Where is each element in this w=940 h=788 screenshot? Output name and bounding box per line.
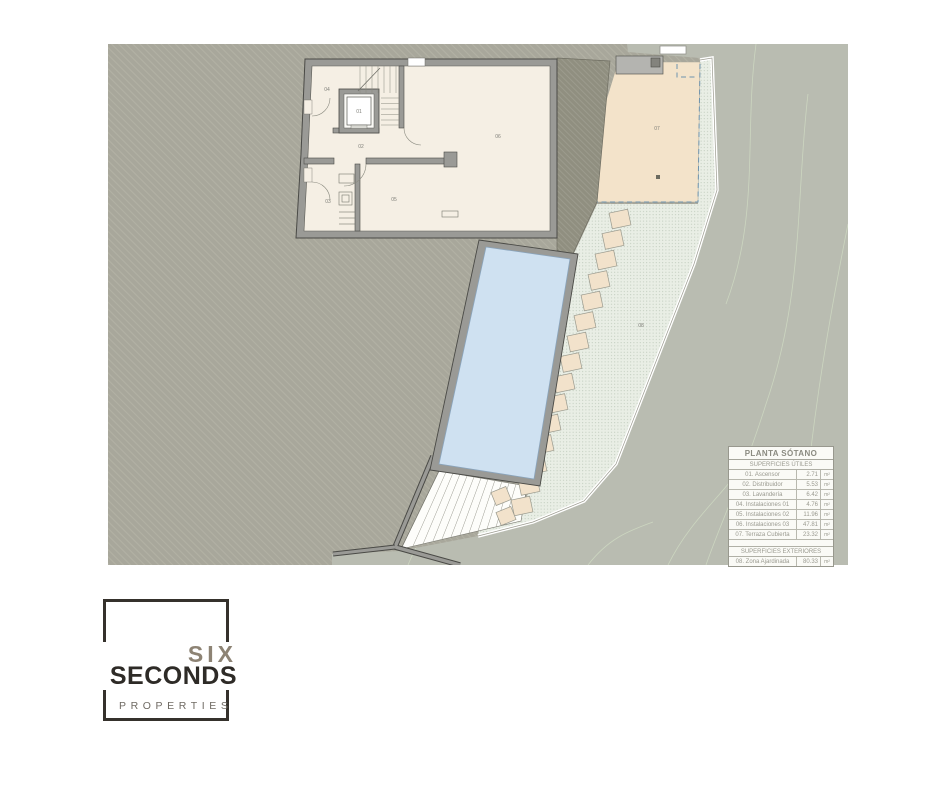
room-label-02: 02 (358, 144, 364, 150)
legend-row: 04. Instalaciones 01 4.76 m² (729, 500, 833, 510)
legend-row-label: 05. Instalaciones 02 (729, 510, 796, 519)
legend-row-unit: m² (820, 500, 833, 509)
legend-row-label: 08. Zona Ajardinada (729, 557, 796, 566)
legend-row-value: 6.42 (796, 490, 820, 499)
legend-row: 06. Instalaciones 03 47.81 m² (729, 520, 833, 530)
room-label-03: 03 (325, 199, 331, 205)
legend-section-header-utiles: SUPERFICIES ÚTILES (729, 460, 833, 470)
legend-row: 05. Instalaciones 02 11.96 m² (729, 510, 833, 520)
room-label-06: 06 (495, 134, 501, 140)
legend-row: 01. Ascensor 2.71 m² (729, 470, 833, 480)
room-label-04: 04 (324, 87, 330, 93)
legend-row-value: 2.71 (796, 470, 820, 479)
legend-row-unit: m² (820, 510, 833, 519)
legend-section-header-exteriores: SUPERFICIES EXTERIORES (729, 547, 833, 557)
legend-row-label: 01. Ascensor (729, 470, 796, 479)
house (296, 58, 557, 238)
room-label-08: 08 (638, 323, 644, 329)
legend-row-label: 02. Distribuidor (729, 480, 796, 489)
legend-row-label: 06. Instalaciones 03 (729, 520, 796, 529)
legend-row-unit: m² (820, 557, 833, 566)
page: 04 01 02 03 05 06 07 08 PLANTA SÓTANO SU… (0, 0, 940, 788)
legend-row-label: 03. Lavandería (729, 490, 796, 499)
legend-row: 08. Zona Ajardinada 80.33 m² (729, 557, 833, 566)
legend-row-label: 07. Terraza Cubierta (729, 530, 796, 539)
legend-row-unit: m² (820, 470, 833, 479)
legend-row: 07. Terraza Cubierta 23.32 m² (729, 530, 833, 540)
logo-wordmark: SIX SECONDS (100, 642, 237, 690)
legend-table: PLANTA SÓTANO SUPERFICIES ÚTILES 01. Asc… (728, 446, 834, 567)
legend-row-value: 11.96 (796, 510, 820, 519)
top-wall-vent (408, 58, 425, 66)
legend-row: 03. Lavandería 6.42 m² (729, 490, 833, 500)
legend-row-unit: m² (820, 480, 833, 489)
legend-row-unit: m² (820, 530, 833, 539)
legend-row-value: 47.81 (796, 520, 820, 529)
room-label-05: 05 (391, 197, 397, 203)
terrace-07 (597, 62, 700, 202)
legend-row-value: 23.32 (796, 530, 820, 539)
legend-row: 02. Distribuidor 5.53 m² (729, 480, 833, 490)
legend-spacer (729, 540, 833, 547)
company-logo: SIX SECONDS PROPERTIES (103, 599, 229, 721)
legend-row-value: 5.53 (796, 480, 820, 489)
legend-row-label: 04. Instalaciones 01 (729, 500, 796, 509)
legend-title: PLANTA SÓTANO (729, 447, 833, 460)
logo-word-seconds: SECONDS (110, 665, 237, 688)
room-label-07: 07 (654, 126, 660, 132)
room-label-01: 01 (356, 109, 362, 115)
legend-row-unit: m² (820, 520, 833, 529)
legend-row-unit: m² (820, 490, 833, 499)
planter (660, 46, 686, 54)
logo-word-properties: PROPERTIES (119, 700, 233, 712)
legend-row-value: 4.76 (796, 500, 820, 509)
legend-row-value: 80.33 (796, 557, 820, 566)
floor-plan-canvas: 04 01 02 03 05 06 07 08 PLANTA SÓTANO SU… (108, 44, 848, 565)
entrance-pillar (651, 58, 660, 67)
terrace-drain (656, 175, 660, 179)
